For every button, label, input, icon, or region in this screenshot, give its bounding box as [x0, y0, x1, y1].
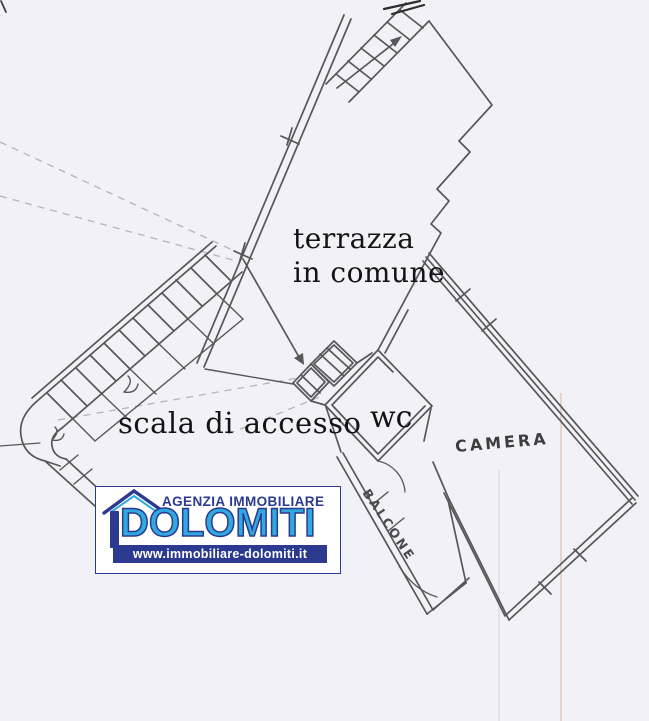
label-wc: wc — [370, 400, 412, 435]
label-terrace-line2: in comune — [293, 256, 445, 290]
floor-plan-drawing — [0, 0, 649, 721]
leader-lines — [0, 142, 322, 434]
agency-logo: AGENZIA IMMOBILIARE DOLOMITI www.immobil… — [95, 486, 341, 574]
logo-website-banner: www.immobiliare-dolomiti.it — [113, 545, 327, 563]
label-terrace: terrazza in comune — [293, 222, 445, 290]
house-door-icon — [110, 511, 119, 548]
label-terrace-line1: terrazza — [293, 222, 445, 256]
label-access-stairs: scala di accesso — [118, 406, 361, 440]
logo-brand-name: DOLOMITI — [120, 503, 316, 543]
floor-plan-page: terrazza in comune scala di accesso wc C… — [0, 0, 649, 721]
